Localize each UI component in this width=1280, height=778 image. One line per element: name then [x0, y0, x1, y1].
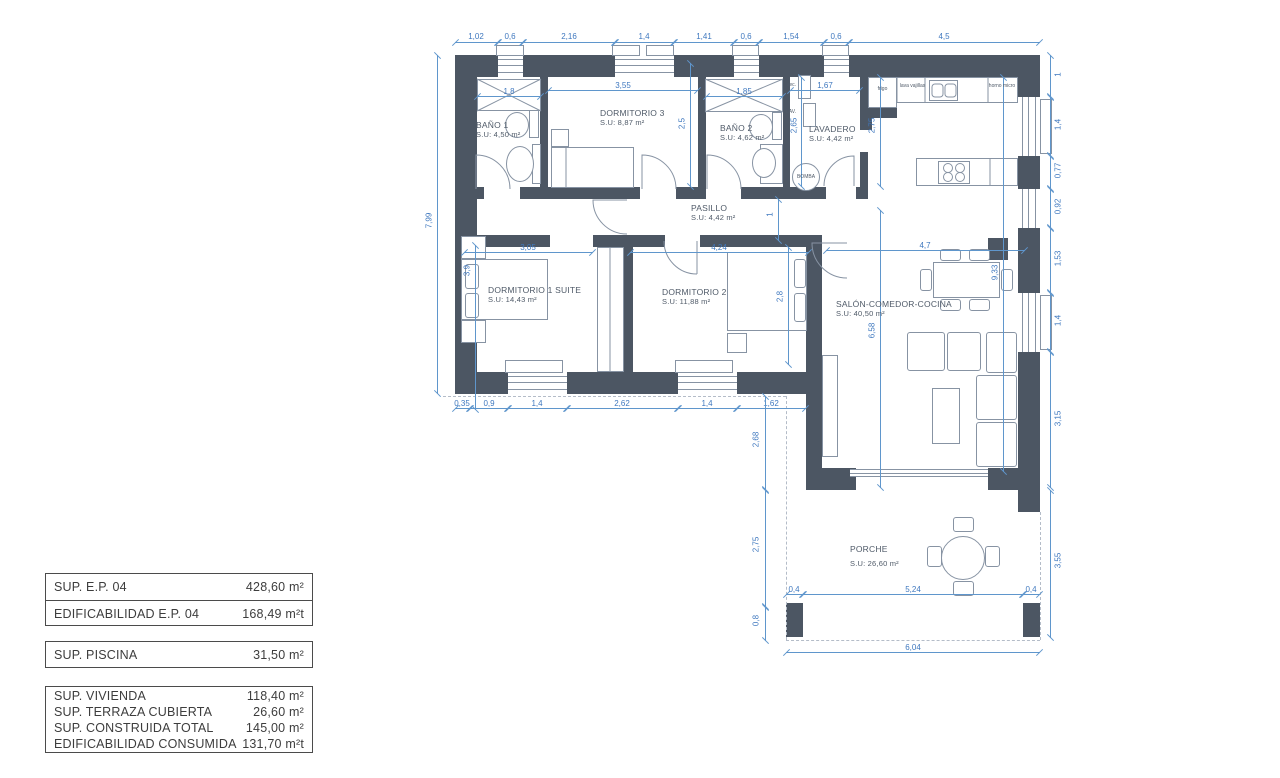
wall	[806, 468, 856, 490]
floorplan-drawing: 1,02 0,6 2,16 1,4 1,41 0,6 1,54 0,6 4,5 …	[0, 0, 1280, 778]
porch-dashed-line	[786, 640, 1040, 641]
dim-line	[674, 42, 734, 43]
window	[1018, 189, 1040, 228]
pillow	[794, 259, 806, 288]
room-name: PORCHE	[850, 544, 899, 554]
dim-line	[737, 408, 806, 409]
dim-label: 0,6	[814, 32, 858, 41]
dim-label: 2,16	[547, 32, 591, 41]
dim-label: 0,6	[724, 32, 768, 41]
wall	[1018, 352, 1040, 488]
summary-value: 26,60 m²	[253, 705, 304, 719]
overhang-dashed-line	[443, 396, 786, 397]
dim-line	[778, 199, 779, 241]
dim-label: 7,99	[425, 201, 434, 241]
chair	[927, 546, 942, 567]
wall	[477, 187, 484, 199]
summary-label: SUP. E.P. 04	[54, 580, 127, 594]
surface-summary-block-2: SUP. PISCINA 31,50 m²	[45, 641, 313, 668]
dim-line	[826, 250, 1025, 251]
sofa	[976, 422, 1017, 467]
wall	[806, 235, 822, 468]
dim-line	[1050, 97, 1051, 156]
room-area: S.U: 4,42 m²	[691, 213, 736, 223]
dim-line	[523, 42, 615, 43]
dim-label: 1,4	[515, 399, 559, 408]
window	[1018, 97, 1040, 156]
dim-line	[567, 408, 678, 409]
dim-line	[678, 408, 737, 409]
room-label-dormitorio1: DORMITORIO 1 SUITE S.U: 14,43 m²	[488, 285, 581, 305]
summary-row: SUP. E.P. 04 428,60 m²	[46, 574, 312, 601]
window-sill	[732, 45, 759, 56]
summary-value: 168,49 m²t	[242, 607, 304, 621]
room-area: S.U: 14,43 m²	[488, 295, 581, 305]
wall	[455, 372, 508, 394]
room-name: DORMITORIO 2	[662, 287, 727, 297]
door-swing	[642, 155, 676, 189]
dim-line	[734, 42, 759, 43]
room-name: LAVADERO	[809, 124, 856, 134]
room-label-bano1: BAÑO 1 S.U: 4,50 m²	[476, 120, 521, 140]
chair	[985, 546, 1000, 567]
summary-row: SUP. CONSTRUIDA TOTAL 145,00 m²	[46, 720, 312, 736]
toilet	[529, 110, 539, 138]
summary-row: SUP. PISCINA 31,50 m²	[46, 642, 312, 667]
dim-line	[1050, 228, 1051, 293]
dim-label: 3,9	[463, 251, 472, 291]
washer-label: LAV.	[760, 110, 796, 115]
dim-label: 2,68	[752, 420, 761, 460]
dim-line	[765, 490, 766, 607]
dim-label: 1,4	[622, 32, 666, 41]
fridge	[868, 77, 897, 108]
dim-label: 1	[1054, 55, 1063, 95]
nightstand	[551, 129, 569, 147]
wall	[520, 187, 640, 199]
window-sill	[822, 45, 849, 56]
summary-value: 145,00 m²	[246, 721, 304, 735]
sideboard	[822, 355, 838, 457]
surface-summary-block-3: SUP. VIVIENDA 118,40 m² SUP. TERRAZA CUB…	[45, 686, 313, 753]
dim-label: 1,85	[722, 87, 766, 96]
dim-line	[824, 42, 849, 43]
dim-line	[508, 408, 567, 409]
dim-label: 1,67	[803, 81, 847, 90]
wall	[455, 55, 477, 394]
dim-line	[786, 652, 1040, 653]
dim-line	[455, 42, 498, 43]
wall	[856, 187, 868, 199]
dim-line	[615, 42, 674, 43]
porch-dashed-line	[1040, 512, 1041, 640]
porch-table	[941, 536, 985, 580]
window-sill	[496, 45, 524, 56]
summary-row: SUP. VIVIENDA 118,40 m²	[46, 688, 312, 704]
dim-line	[706, 96, 783, 97]
nightstand	[727, 333, 747, 353]
room-name: BAÑO 2	[720, 123, 765, 133]
dim-label: 0,4	[1009, 585, 1053, 594]
dim-label: 3,55	[1054, 541, 1063, 581]
fridge-label: frigo	[868, 87, 897, 92]
dim-line	[765, 607, 766, 641]
dim-label: 2,8	[776, 277, 785, 317]
dim-label: 1,53	[1054, 239, 1063, 279]
wall	[1018, 55, 1040, 97]
dim-line	[803, 594, 1023, 595]
summary-value: 118,40 m²	[247, 689, 304, 703]
washbasin	[506, 146, 534, 182]
room-name: BAÑO 1	[476, 120, 521, 130]
sofa	[947, 332, 981, 371]
room-area: S.U: 4,62 m²	[720, 133, 765, 143]
window	[615, 55, 674, 77]
dim-line	[630, 252, 809, 253]
summary-label: EDIFICABILIDAD CONSUMIDA	[54, 737, 237, 751]
dim-label: 1,4	[1054, 105, 1063, 145]
dim-label: 4,5	[922, 32, 966, 41]
window-sill	[505, 360, 563, 373]
room-label-salon: SALÓN-COMEDOR-COCINA S.U: 40,50 m²	[836, 299, 952, 319]
dim-label: 1,62	[749, 399, 793, 408]
room-name: SALÓN-COMEDOR-COCINA	[836, 299, 952, 309]
chair	[953, 517, 974, 532]
dim-label: 6,04	[891, 643, 935, 652]
room-area: S.U: 40,50 m²	[836, 309, 952, 319]
door-swing	[593, 200, 627, 234]
wall	[674, 55, 734, 77]
dim-line	[498, 42, 523, 43]
room-label-dormitorio3: DORMITORIO 3 S.U: 8,87 m²	[600, 108, 665, 128]
summary-value: 131,70 m²t	[242, 737, 304, 751]
room-label-pasillo: PASILLO S.U: 4,42 m²	[691, 203, 736, 223]
dim-label: 1,54	[769, 32, 813, 41]
dim-line	[880, 77, 881, 187]
dim-label: 1,8	[487, 87, 531, 96]
kitchen-sink	[929, 80, 958, 101]
dim-label: 2,75	[752, 525, 761, 565]
wall	[567, 372, 678, 394]
window-sill	[646, 45, 674, 56]
room-area: S.U: 26,60 m²	[850, 559, 899, 569]
dim-line	[765, 396, 766, 490]
dim-line	[788, 247, 789, 365]
dim-label: 9,33	[991, 253, 1000, 293]
sofa	[986, 332, 1017, 373]
wardrobe	[597, 247, 624, 372]
window	[678, 372, 737, 394]
wall	[1018, 228, 1040, 293]
dim-line	[1023, 594, 1040, 595]
dim-label: 0,8	[752, 601, 761, 641]
dim-label: 1,41	[682, 32, 726, 41]
dim-line	[849, 42, 1040, 43]
room-area: S.U: 4,50 m²	[476, 130, 521, 140]
window	[508, 372, 567, 394]
room-name: DORMITORIO 1 SUITE	[488, 285, 581, 295]
sliding-door	[850, 469, 988, 477]
wall	[624, 235, 633, 372]
room-name: DORMITORIO 3	[600, 108, 665, 118]
dim-line	[880, 210, 881, 488]
room-label-bano2: BAÑO 2 S.U: 4,62 m²	[720, 123, 765, 143]
summary-row: SUP. TERRAZA CUBIERTA 26,60 m²	[46, 704, 312, 720]
dim-line	[1050, 55, 1051, 97]
chair	[920, 269, 932, 291]
summary-label: SUP. CONSTRUIDA TOTAL	[54, 721, 214, 735]
dim-label: 0,92	[1054, 187, 1063, 227]
room-name: PASILLO	[691, 203, 736, 213]
room-area: S.U: 11,88 m²	[662, 297, 727, 307]
toilet	[772, 112, 782, 140]
porch-pillar	[1023, 603, 1040, 637]
window	[498, 55, 523, 77]
window	[1018, 293, 1040, 352]
dim-label: 1,4	[685, 399, 729, 408]
dim-line	[759, 42, 824, 43]
window	[734, 55, 759, 77]
dim-label: 2,5	[678, 104, 687, 144]
chair	[969, 299, 990, 311]
summary-value: 428,60 m²	[246, 580, 304, 594]
wall	[676, 187, 705, 199]
dim-label: 4,7	[903, 241, 947, 250]
sofa	[907, 332, 945, 371]
sofa	[976, 375, 1017, 420]
nightstand	[461, 320, 486, 343]
dim-label: 3,15	[1054, 399, 1063, 439]
dim-line	[1003, 77, 1004, 472]
room-label-porche: PORCHE S.U: 26,60 m²	[850, 544, 899, 569]
summary-label: EDIFICABILIDAD E.P. 04	[54, 607, 199, 621]
summary-label: SUP. PISCINA	[54, 648, 137, 662]
door-swing	[664, 241, 697, 274]
room-label-dormitorio2: DORMITORIO 2 S.U: 11,88 m²	[662, 287, 727, 307]
dim-line	[437, 55, 438, 394]
washbasin	[752, 148, 776, 178]
summary-row: EDIFICABILIDAD E.P. 04 168,49 m²t	[46, 601, 312, 626]
coffee-table	[932, 388, 960, 444]
dim-label: 2,62	[600, 399, 644, 408]
cooktop	[938, 161, 970, 184]
dim-label: 4,24	[697, 243, 741, 252]
dim-line	[801, 77, 802, 187]
window	[824, 55, 849, 77]
dim-label: 1,4	[1054, 301, 1063, 341]
porch-pillar	[786, 603, 803, 637]
room-area: S.U: 8,87 m²	[600, 118, 665, 128]
door-swing	[707, 155, 741, 189]
dryer-label: sec.	[760, 83, 796, 88]
dim-label: 2,75	[868, 106, 877, 146]
window-sill	[612, 45, 640, 56]
dim-line	[1050, 156, 1051, 189]
surface-summary-block-1: SUP. E.P. 04 428,60 m² EDIFICABILIDAD E.…	[45, 573, 313, 626]
door-swing	[824, 156, 854, 186]
pillow	[794, 293, 806, 322]
wall	[759, 55, 824, 77]
wall	[737, 372, 806, 394]
dim-label: 0,4	[772, 585, 816, 594]
wall	[1018, 156, 1040, 189]
dim-line	[475, 245, 476, 410]
dim-line	[464, 252, 593, 253]
dim-label: 3,05	[506, 243, 550, 252]
summary-value: 31,50 m²	[253, 648, 304, 662]
bed	[551, 147, 634, 188]
dim-label: 0,77	[1054, 151, 1063, 191]
window-sill	[675, 360, 733, 373]
dim-line	[786, 594, 803, 595]
pump-label: BOMBA	[792, 175, 820, 180]
dim-label: 3,55	[601, 81, 645, 90]
summary-row: EDIFICABILIDAD CONSUMIDA 131,70 m²t	[46, 736, 312, 752]
dim-line	[548, 90, 698, 91]
room-area: S.U: 4,42 m²	[809, 134, 856, 144]
dim-line	[1050, 293, 1051, 352]
dim-label: 0,6	[488, 32, 532, 41]
dim-label: 5,24	[891, 585, 935, 594]
door-swing	[476, 155, 510, 189]
summary-label: SUP. VIVIENDA	[54, 689, 146, 703]
dim-line	[1050, 352, 1051, 488]
dim-line	[690, 63, 691, 187]
pillow	[465, 293, 479, 318]
dim-line	[1050, 490, 1051, 638]
room-label-lavadero: LAVADERO S.U: 4,42 m²	[809, 124, 856, 144]
dishwasher-label: lava vajillas	[899, 84, 926, 89]
wall	[860, 152, 868, 187]
summary-label: SUP. TERRAZA CUBIERTA	[54, 705, 212, 719]
dim-line	[477, 96, 541, 97]
dim-label: 1	[766, 195, 775, 235]
wall	[523, 55, 615, 77]
dim-line	[1050, 189, 1051, 228]
porch-dashed-line	[786, 396, 787, 640]
oven-label: horno micro	[988, 84, 1016, 89]
wall	[1018, 488, 1040, 512]
